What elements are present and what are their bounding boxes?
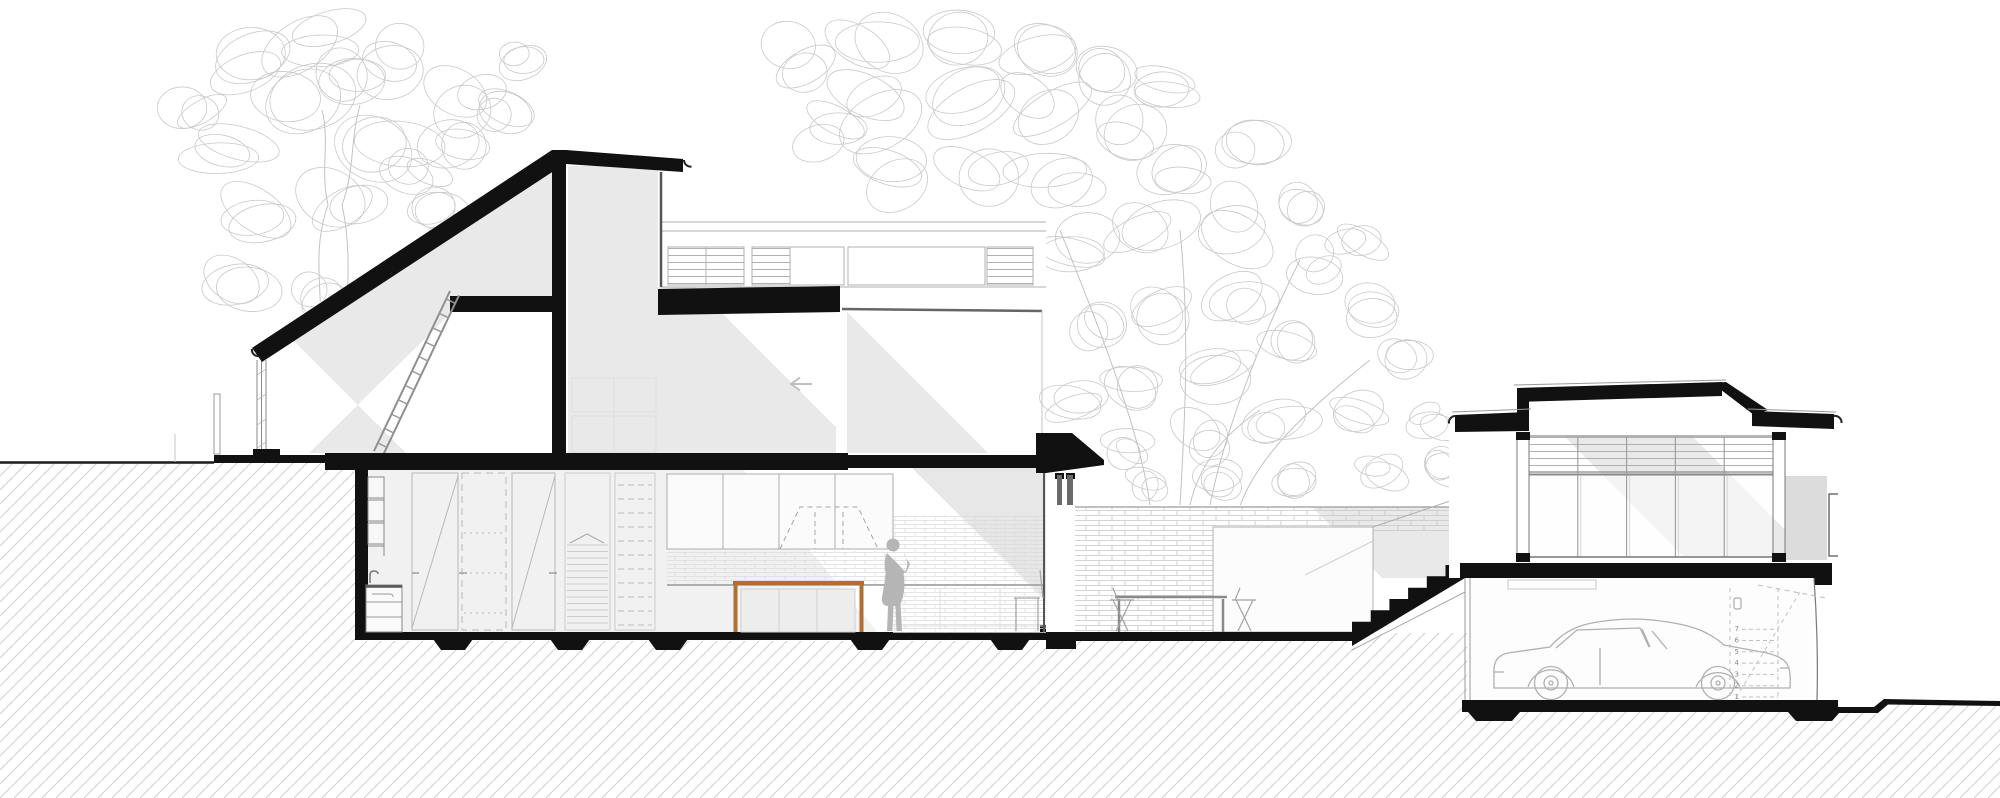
terrace-shadow bbox=[847, 312, 988, 453]
louvre-band bbox=[1529, 437, 1773, 472]
tread-number: 1 bbox=[1735, 693, 1739, 701]
garage: 1234567 bbox=[1465, 578, 1826, 701]
tread-number: 5 bbox=[1735, 648, 1739, 656]
tread-number: 3 bbox=[1735, 670, 1739, 678]
tower-shadow-upper bbox=[568, 166, 658, 287]
center-wall bbox=[552, 150, 566, 453]
splashback-tile-tall bbox=[893, 515, 1046, 633]
right-building: 1234567 bbox=[1449, 378, 1842, 721]
gf-floor-slab bbox=[355, 632, 1058, 640]
rear-roof-line bbox=[842, 309, 1042, 311]
terrace-railing bbox=[214, 394, 220, 454]
terrace-slab bbox=[214, 455, 329, 463]
studio-floor-slab bbox=[1460, 563, 1832, 578]
glazing bbox=[1529, 476, 1773, 557]
section-drawing-canvas: 1234567 bbox=[0, 0, 2000, 798]
garage-ground-slab bbox=[1462, 700, 1838, 712]
courtyard-footing bbox=[1046, 640, 1076, 649]
tread-number: 4 bbox=[1735, 659, 1740, 667]
tread-number: 6 bbox=[1735, 637, 1740, 645]
courtyard-slab bbox=[1046, 632, 1353, 641]
loft-floor bbox=[450, 296, 566, 312]
mid-roof bbox=[658, 286, 840, 315]
kitchen-island bbox=[733, 583, 864, 632]
courtyard bbox=[1046, 497, 1518, 650]
stair-enclosure-panel bbox=[1785, 476, 1827, 560]
upper-floor-slab bbox=[325, 453, 848, 470]
section-drawing: 1234567 bbox=[0, 0, 2000, 798]
tread-number: 7 bbox=[1735, 625, 1739, 633]
roof-terrace-slab bbox=[848, 455, 1048, 468]
splashback-tile bbox=[667, 551, 893, 585]
kitchen-upper-cabinets bbox=[667, 474, 893, 549]
tread-number: 2 bbox=[1735, 682, 1739, 690]
entry-canopy bbox=[1036, 433, 1104, 473]
brick-wall bbox=[1075, 531, 1215, 633]
wall-shelf-ladder bbox=[368, 477, 384, 556]
studio-window-wall bbox=[1516, 432, 1786, 562]
